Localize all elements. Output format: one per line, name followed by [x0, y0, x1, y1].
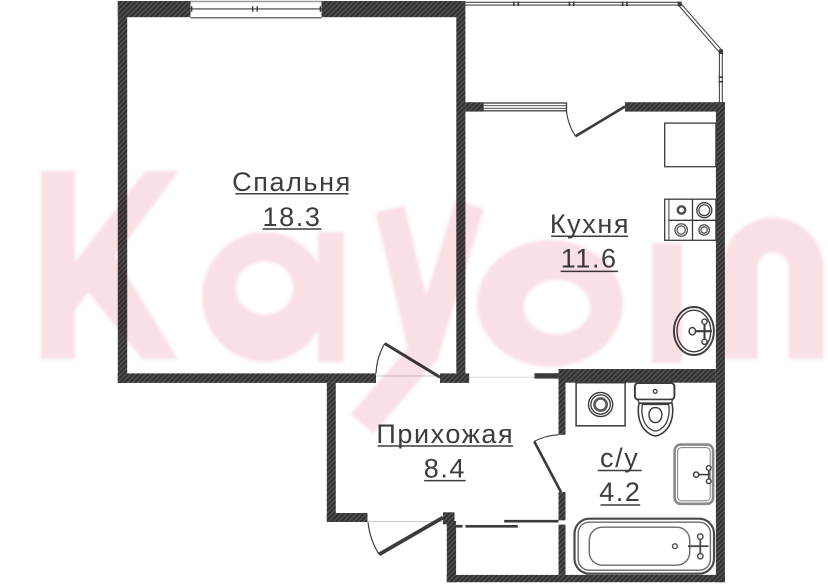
svg-text:8.4: 8.4 [424, 454, 466, 484]
svg-text:Прихожая: Прихожая [376, 419, 514, 449]
svg-text:Кухня: Кухня [550, 209, 630, 239]
svg-text:4.2: 4.2 [599, 477, 641, 507]
svg-text:18.3: 18.3 [263, 202, 322, 232]
svg-text:с/у: с/у [600, 443, 639, 473]
svg-text:Спальня: Спальня [232, 167, 352, 197]
